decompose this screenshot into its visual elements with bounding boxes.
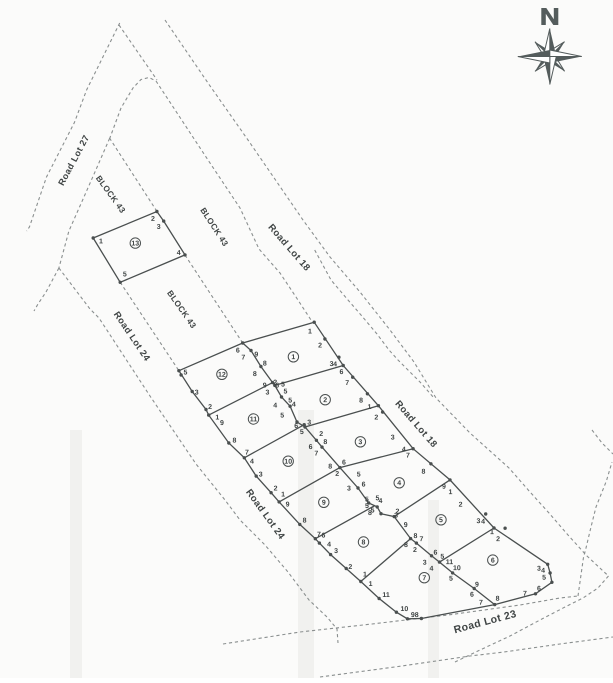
svg-text:2: 2: [413, 547, 417, 554]
svg-text:2: 2: [348, 564, 352, 571]
svg-text:6: 6: [537, 586, 541, 593]
svg-text:2: 2: [335, 471, 339, 478]
svg-text:4: 4: [250, 458, 254, 465]
svg-text:9: 9: [254, 351, 258, 358]
svg-text:9: 9: [286, 501, 290, 508]
svg-text:2: 2: [395, 509, 399, 516]
svg-text:6: 6: [275, 382, 279, 389]
svg-text:9: 9: [263, 382, 267, 389]
svg-text:1: 1: [448, 489, 452, 496]
svg-text:2: 2: [496, 536, 500, 543]
svg-text:7: 7: [317, 532, 321, 539]
svg-text:3: 3: [391, 435, 395, 442]
svg-text:6: 6: [294, 423, 298, 430]
svg-text:5: 5: [184, 369, 188, 376]
svg-text:3: 3: [347, 486, 351, 493]
svg-text:6: 6: [236, 347, 240, 354]
svg-text:1: 1: [308, 329, 312, 336]
svg-text:3: 3: [195, 389, 199, 396]
svg-text:6: 6: [362, 482, 366, 489]
svg-text:8: 8: [422, 469, 426, 476]
svg-text:4: 4: [429, 566, 433, 573]
svg-text:4: 4: [481, 519, 485, 526]
svg-text:8: 8: [496, 596, 500, 603]
svg-text:1: 1: [281, 491, 285, 498]
svg-text:6: 6: [433, 550, 437, 557]
svg-text:5: 5: [365, 503, 369, 510]
svg-text:10: 10: [453, 565, 461, 572]
svg-text:8: 8: [233, 437, 237, 444]
svg-text:7: 7: [345, 380, 349, 387]
svg-text:3: 3: [358, 439, 362, 446]
svg-text:5: 5: [439, 517, 443, 524]
svg-text:7: 7: [241, 354, 245, 361]
svg-text:7: 7: [245, 449, 249, 456]
svg-text:7: 7: [479, 600, 483, 607]
svg-text:6: 6: [321, 533, 325, 540]
svg-text:7: 7: [523, 591, 527, 598]
svg-text:13: 13: [131, 240, 139, 247]
svg-text:9: 9: [475, 582, 479, 589]
svg-text:3: 3: [423, 560, 427, 567]
svg-text:1: 1: [369, 581, 373, 588]
svg-text:4: 4: [177, 250, 181, 257]
svg-text:2: 2: [318, 343, 322, 350]
svg-text:8: 8: [404, 542, 408, 549]
svg-text:9: 9: [322, 500, 326, 507]
svg-text:3: 3: [307, 420, 311, 427]
svg-text:98: 98: [411, 612, 419, 619]
svg-text:2: 2: [151, 216, 155, 223]
svg-text:5: 5: [123, 271, 127, 278]
svg-text:3: 3: [476, 518, 480, 525]
svg-text:4: 4: [378, 498, 382, 505]
svg-text:4: 4: [541, 568, 545, 575]
svg-text:11: 11: [250, 416, 258, 423]
svg-text:3: 3: [259, 471, 263, 478]
svg-text:7: 7: [406, 453, 410, 460]
svg-text:3: 3: [265, 389, 269, 396]
svg-text:1: 1: [291, 354, 295, 361]
svg-text:1: 1: [215, 414, 219, 421]
svg-text:2: 2: [319, 431, 323, 438]
svg-text:6: 6: [340, 369, 344, 376]
svg-text:8: 8: [359, 398, 363, 405]
svg-text:4: 4: [327, 542, 331, 549]
svg-text:5: 5: [280, 412, 284, 419]
svg-text:8: 8: [362, 539, 366, 546]
svg-text:7: 7: [314, 451, 318, 458]
svg-text:2: 2: [374, 415, 378, 422]
svg-text:8: 8: [263, 360, 267, 367]
svg-text:8: 8: [368, 510, 372, 517]
svg-text:2: 2: [208, 404, 212, 411]
svg-text:8: 8: [253, 371, 257, 378]
svg-text:5: 5: [542, 575, 546, 582]
svg-text:5: 5: [284, 388, 288, 395]
svg-text:7: 7: [419, 536, 423, 543]
svg-text:1: 1: [99, 238, 103, 245]
svg-text:8: 8: [323, 439, 327, 446]
svg-text:3: 3: [157, 224, 161, 231]
svg-text:1: 1: [363, 572, 367, 579]
svg-text:5: 5: [449, 576, 453, 583]
svg-text:6: 6: [342, 460, 346, 467]
svg-text:8: 8: [328, 464, 332, 471]
svg-text:8: 8: [303, 518, 307, 525]
svg-text:12: 12: [218, 372, 226, 379]
svg-text:7: 7: [422, 575, 426, 582]
svg-text:2: 2: [274, 485, 278, 492]
svg-text:3: 3: [334, 548, 338, 555]
svg-text:9: 9: [442, 484, 446, 491]
svg-text:9: 9: [404, 522, 408, 529]
svg-text:1: 1: [368, 404, 372, 411]
svg-text:10: 10: [400, 606, 408, 613]
svg-text:8: 8: [413, 533, 417, 540]
svg-text:10: 10: [284, 459, 292, 466]
svg-text:5: 5: [440, 554, 444, 561]
svg-text:6: 6: [309, 444, 313, 451]
svg-text:5: 5: [281, 381, 285, 388]
svg-text:4: 4: [273, 402, 277, 409]
svg-text:4: 4: [397, 480, 401, 487]
svg-text:11: 11: [382, 592, 390, 599]
svg-text:2: 2: [323, 397, 327, 404]
svg-text:1: 1: [490, 529, 494, 536]
svg-text:6: 6: [470, 592, 474, 599]
svg-text:9: 9: [220, 420, 224, 427]
svg-text:5: 5: [300, 429, 304, 436]
svg-text:5: 5: [357, 472, 361, 479]
svg-text:4: 4: [333, 361, 337, 368]
svg-text:6: 6: [491, 557, 495, 564]
svg-text:2: 2: [459, 502, 463, 509]
svg-text:4: 4: [292, 401, 296, 408]
